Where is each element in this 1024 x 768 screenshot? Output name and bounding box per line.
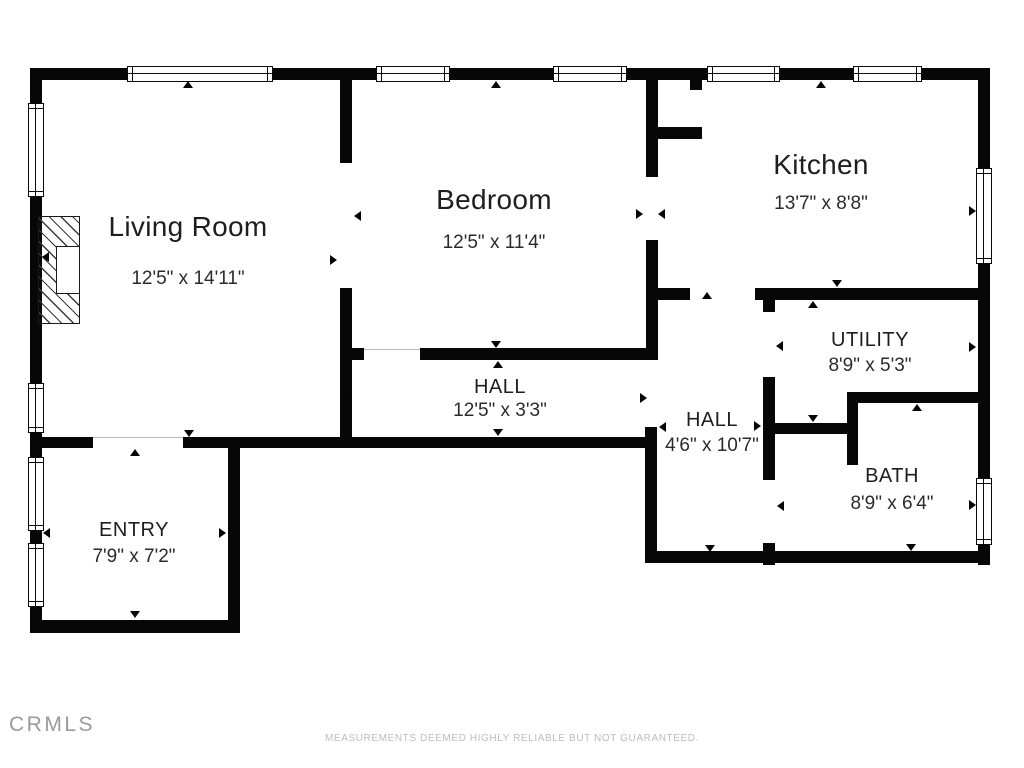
dimension-arrow-left-icon (659, 422, 666, 432)
door-opening-line (364, 349, 420, 350)
window-icon (553, 66, 627, 82)
wall-segment (645, 427, 657, 553)
dimension-arrow-right-icon (969, 500, 976, 510)
window-icon (28, 103, 44, 197)
room-name-bath: BATH (865, 465, 919, 488)
dimension-arrow-up-icon (912, 404, 922, 411)
room-dims-hall: 12'5" x 3'3" (453, 400, 547, 422)
window-icon (28, 457, 44, 531)
room-dims-hall: 4'6" x 10'7" (665, 435, 759, 457)
wall-segment (228, 437, 240, 633)
wall-segment (645, 551, 990, 563)
room-dims-kitchen: 13'7" x 8'8" (774, 193, 868, 215)
dimension-arrow-right-icon (754, 421, 761, 431)
dimension-arrow-up-icon (816, 81, 826, 88)
room-dims-bath: 8'9" x 6'4" (850, 493, 933, 515)
dimension-arrow-up-icon (702, 292, 712, 299)
window-icon (853, 66, 922, 82)
dimension-arrow-down-icon (808, 415, 818, 422)
dimension-arrow-left-icon (776, 341, 783, 351)
dimension-arrow-up-icon (130, 449, 140, 456)
dimension-arrow-right-icon (640, 393, 647, 403)
window-icon (127, 66, 273, 82)
room-name-hall: HALL (474, 376, 526, 399)
window-icon (976, 478, 992, 545)
dimension-arrow-up-icon (183, 81, 193, 88)
wall-segment (763, 543, 775, 565)
dimension-arrow-right-icon (969, 342, 976, 352)
wall-segment (847, 392, 983, 403)
room-name-living-room: Living Room (109, 211, 268, 243)
wall-segment (646, 68, 658, 177)
dimension-arrow-right-icon (219, 528, 226, 538)
dimension-arrow-left-icon (354, 211, 361, 221)
dimension-arrow-up-icon (808, 301, 818, 308)
room-name-utility: UTILITY (831, 329, 909, 352)
wall-segment (690, 80, 702, 90)
room-name-kitchen: Kitchen (773, 149, 869, 181)
dimension-arrow-right-icon (330, 255, 337, 265)
dimension-arrow-down-icon (832, 280, 842, 287)
wall-segment (30, 437, 93, 448)
dimension-arrow-down-icon (493, 429, 503, 436)
wall-segment (763, 423, 853, 434)
dimension-arrow-down-icon (184, 430, 194, 437)
dimension-arrow-right-icon (969, 206, 976, 216)
wall-segment (340, 68, 352, 163)
wall-segment (755, 288, 980, 300)
window-icon (28, 543, 44, 607)
wall-segment (646, 240, 658, 360)
dimension-arrow-up-icon (493, 361, 503, 368)
wall-segment (656, 127, 702, 139)
room-name-hall: HALL (686, 409, 738, 432)
dimension-arrow-left-icon (344, 394, 351, 404)
room-name-bedroom: Bedroom (436, 184, 552, 216)
wall-segment (340, 348, 364, 360)
wall-segment (646, 288, 690, 300)
dimension-arrow-down-icon (705, 545, 715, 552)
dimension-arrow-left-icon (42, 252, 49, 262)
fireplace-firebox (56, 246, 80, 294)
window-icon (976, 168, 992, 264)
floorplan-canvas: Living Room12'5" x 14'11"Bedroom12'5" x … (0, 0, 1024, 768)
wall-segment (30, 620, 240, 633)
dimension-arrow-left-icon (777, 501, 784, 511)
window-icon (28, 383, 44, 433)
wall-segment (340, 288, 352, 448)
wall-segment (763, 300, 775, 312)
room-dims-bedroom: 12'5" x 11'4" (443, 232, 546, 254)
room-dims-entry: 7'9" x 7'2" (92, 546, 175, 568)
room-dims-utility: 8'9" x 5'3" (828, 355, 911, 377)
dimension-arrow-left-icon (43, 528, 50, 538)
window-icon (707, 66, 780, 82)
dimension-arrow-down-icon (130, 611, 140, 618)
dimension-arrow-left-icon (658, 209, 665, 219)
dimension-arrow-down-icon (491, 341, 501, 348)
measurements-disclaimer: MEASUREMENTS DEEMED HIGHLY RELIABLE BUT … (0, 733, 1024, 744)
dimension-arrow-down-icon (906, 544, 916, 551)
window-icon (376, 66, 450, 82)
door-opening-line (93, 437, 183, 438)
dimension-arrow-right-icon (636, 209, 643, 219)
room-name-entry: ENTRY (99, 519, 169, 542)
wall-segment (183, 437, 657, 448)
room-dims-living-room: 12'5" x 14'11" (131, 268, 244, 290)
wall-segment (420, 348, 649, 360)
dimension-arrow-up-icon (491, 81, 501, 88)
